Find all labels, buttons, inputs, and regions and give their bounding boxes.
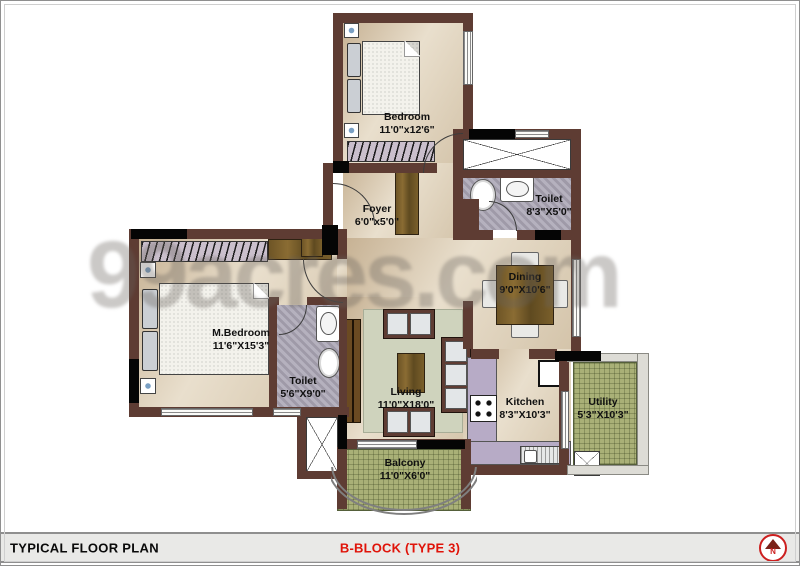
window <box>463 31 473 85</box>
room-label-master-bedroom: M.Bedroom 11'6"X15'3" <box>212 327 270 353</box>
sliding-door <box>357 440 417 449</box>
ventilation-shaft <box>463 139 571 170</box>
nightstand <box>140 262 156 278</box>
bed-pillow <box>347 43 361 77</box>
room-dims: 6'0"x5'0" <box>355 216 399 229</box>
wall <box>457 199 479 239</box>
window <box>273 408 301 416</box>
wall <box>453 170 581 178</box>
wall <box>337 239 347 259</box>
room-name: Balcony <box>380 457 431 470</box>
room-name: Toilet <box>526 193 571 206</box>
utility-parapet <box>637 353 649 475</box>
plan-title: TYPICAL FLOOR PLAN <box>10 540 159 555</box>
wall <box>297 415 306 479</box>
room-name: M.Bedroom <box>212 327 270 340</box>
bed-pillow <box>347 79 361 113</box>
room-label-toilet-master: Toilet 5'6"X9'0" <box>280 375 325 401</box>
room-dims: 11'0"X18'0" <box>378 399 434 412</box>
room-dims: 11'0"X6'0" <box>380 470 431 483</box>
toilet-wc <box>318 348 340 378</box>
room-label-dining: Dining 9'0"X10'6" <box>499 271 550 297</box>
block-type-title: B-BLOCK (TYPE 3) <box>340 540 460 555</box>
room-label-toilet-top: Toilet 8'3"X5'0" <box>526 193 571 219</box>
dining-chair <box>552 280 568 308</box>
wardrobe <box>141 241 268 262</box>
room-dims: 11'6"X15'3" <box>212 340 270 353</box>
kitchen-sink <box>520 446 562 464</box>
blanket-fold <box>253 283 269 299</box>
room-label-utility: Utility 5'3"X10'3" <box>577 396 628 422</box>
room-label-foyer: Foyer 6'0"x5'0" <box>355 203 399 229</box>
room-dims: 8'3"X10'3" <box>499 409 550 422</box>
room-label-balcony: Balcony 11'0"X6'0" <box>380 457 431 483</box>
room-name: Toilet <box>280 375 325 388</box>
lintel <box>535 230 561 240</box>
window <box>572 259 581 337</box>
north-indicator-logo: N <box>759 534 787 562</box>
bed-pillow <box>142 331 158 371</box>
wall <box>471 349 499 359</box>
footer-bar: TYPICAL FLOOR PLAN B-BLOCK (TYPE 3) N <box>1 532 799 563</box>
window <box>561 391 569 449</box>
ventilation-shaft <box>306 417 338 472</box>
room-name: Utility <box>577 396 628 409</box>
wall <box>333 13 473 23</box>
room-name: Foyer <box>355 203 399 216</box>
room-label-kitchen: Kitchen 8'3"X10'3" <box>499 396 550 422</box>
main-entrance-door <box>322 225 338 255</box>
room-dims: 11'0"x12'6" <box>379 124 434 137</box>
room-label-bedroom: Bedroom 11'0"x12'6" <box>379 111 434 137</box>
bed-pillow <box>142 289 158 329</box>
room-name: Bedroom <box>379 111 434 124</box>
wardrobe <box>347 141 435 162</box>
wall <box>339 297 347 409</box>
wall <box>529 349 557 359</box>
wall <box>463 301 473 349</box>
wall <box>333 13 343 173</box>
wall <box>269 297 277 409</box>
lintel <box>131 229 187 239</box>
utility-parapet <box>567 465 649 475</box>
stove <box>470 395 497 422</box>
north-letter: N <box>770 547 776 556</box>
window <box>515 130 549 138</box>
room-label-living: Living 11'0"X18'0" <box>378 386 434 412</box>
room-dims: 5'6"X9'0" <box>280 388 325 401</box>
blanket-fold <box>404 41 420 57</box>
lintel <box>555 351 601 361</box>
nightstand <box>344 23 359 38</box>
wall <box>323 163 333 233</box>
wall <box>463 465 571 475</box>
lintel <box>469 129 515 139</box>
nightstand <box>344 123 359 138</box>
wall-black <box>333 161 349 173</box>
floor-plan-page: Bedroom 11'0"x12'6" Toilet 8'3"X5'0" Foy… <box>0 0 800 566</box>
wall-black <box>338 415 347 449</box>
room-name: Kitchen <box>499 396 550 409</box>
wall-black <box>129 359 139 403</box>
room-name: Living <box>378 386 434 399</box>
window <box>161 408 253 416</box>
nightstand <box>140 378 156 394</box>
room-dims: 5'3"X10'3" <box>577 409 628 422</box>
sofa <box>383 309 435 339</box>
room-name: Dining <box>499 271 550 284</box>
room-dims: 8'3"X5'0" <box>526 206 571 219</box>
wash-basin <box>316 306 340 342</box>
room-dims: 9'0"X10'6" <box>499 284 550 297</box>
lintel <box>417 440 465 449</box>
bed <box>362 41 420 115</box>
